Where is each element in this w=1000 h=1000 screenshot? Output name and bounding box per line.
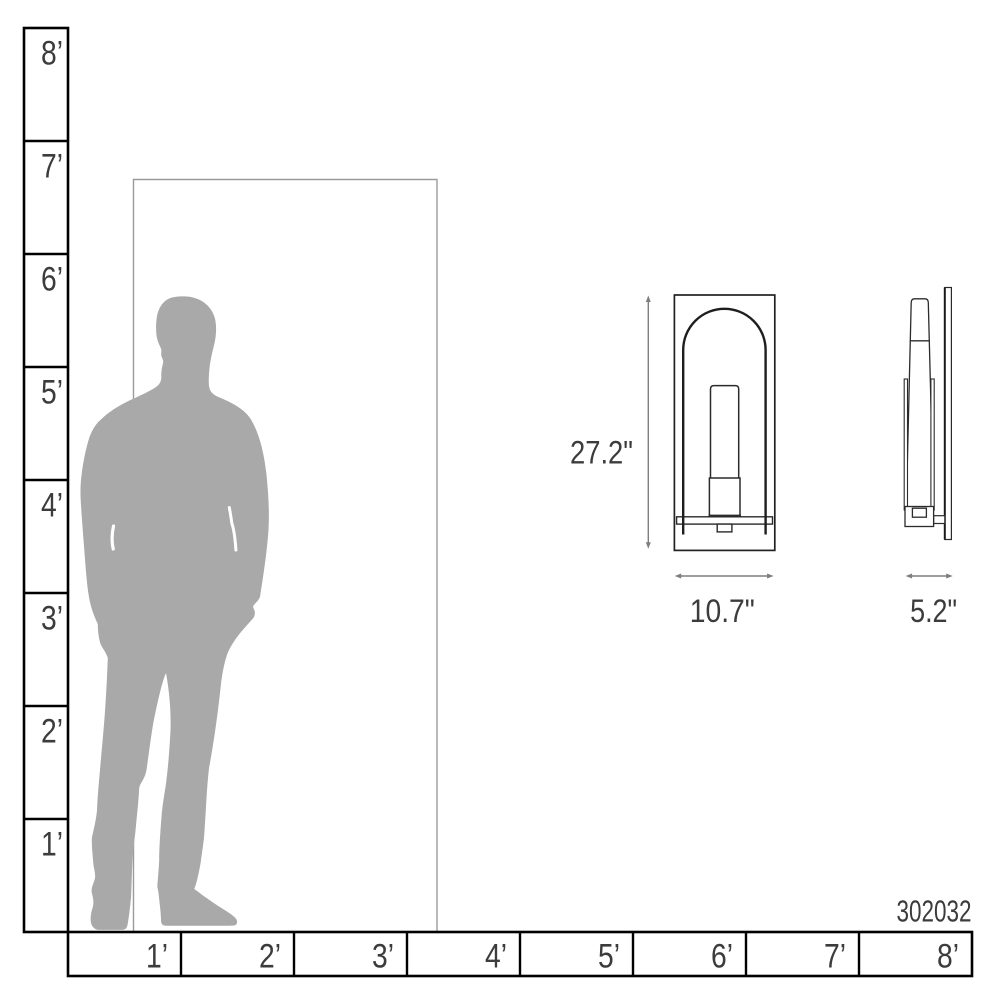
svg-text:2’: 2’ (41, 713, 63, 751)
svg-text:3’: 3’ (372, 938, 394, 976)
svg-text:4’: 4’ (41, 487, 63, 525)
svg-text:3’: 3’ (41, 600, 63, 638)
svg-text:5’: 5’ (598, 938, 620, 976)
svg-text:8’: 8’ (937, 938, 959, 976)
svg-text:10.7": 10.7" (690, 593, 755, 629)
svg-text:6’: 6’ (41, 261, 63, 299)
svg-text:27.2": 27.2" (570, 435, 633, 471)
svg-text:1’: 1’ (41, 826, 63, 864)
svg-text:6’: 6’ (711, 938, 733, 976)
svg-text:4’: 4’ (485, 938, 507, 976)
svg-text:5’: 5’ (41, 374, 63, 412)
svg-text:5.2": 5.2" (910, 593, 957, 629)
svg-text:1’: 1’ (146, 938, 168, 976)
svg-text:7’: 7’ (824, 938, 846, 976)
svg-text:7’: 7’ (41, 148, 63, 186)
svg-text:8’: 8’ (41, 35, 63, 73)
svg-text:302032: 302032 (897, 894, 972, 929)
svg-text:2’: 2’ (259, 938, 281, 976)
